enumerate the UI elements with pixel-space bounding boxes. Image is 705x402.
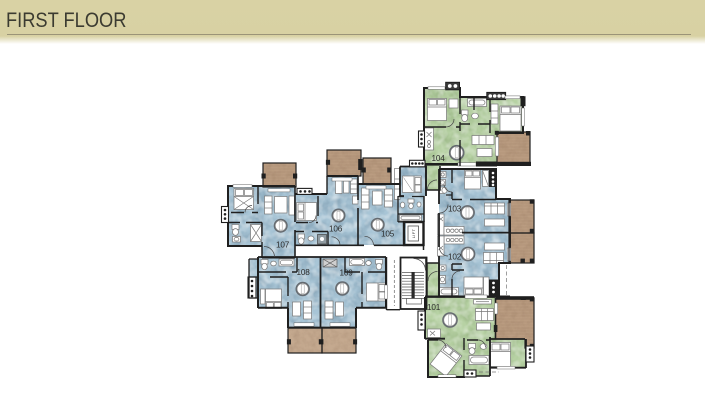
svg-text:103: 103	[448, 205, 462, 214]
svg-text:108: 108	[297, 268, 311, 277]
svg-text:105: 105	[381, 230, 395, 239]
svg-text:107: 107	[276, 241, 290, 250]
svg-text:LIFT: LIFT	[411, 229, 416, 239]
svg-text:104: 104	[432, 154, 446, 163]
svg-text:106: 106	[329, 225, 343, 234]
svg-text:102: 102	[448, 253, 462, 262]
svg-text:109: 109	[340, 269, 354, 278]
svg-text:101: 101	[427, 303, 441, 312]
